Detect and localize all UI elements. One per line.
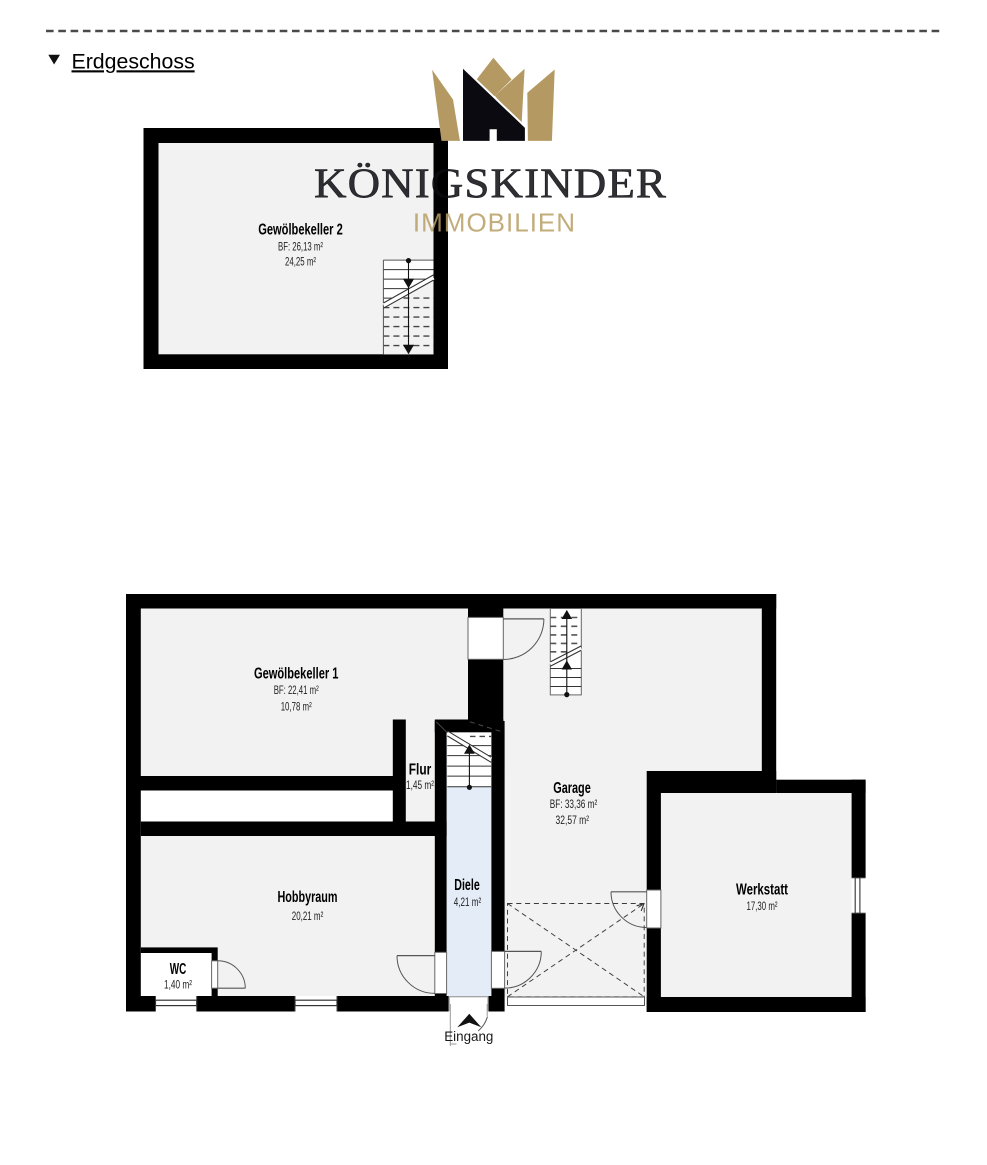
svg-text:Erdgeschoss: Erdgeschoss (72, 49, 195, 73)
svg-text:IMMOBILIEN: IMMOBILIEN (413, 207, 576, 237)
svg-text:20,21 m²: 20,21 m² (292, 909, 324, 923)
svg-text:32,57 m²: 32,57 m² (556, 813, 590, 827)
svg-text:1,40 m²: 1,40 m² (164, 978, 192, 992)
svg-text:1,45 m²: 1,45 m² (406, 778, 434, 792)
svg-text:4,21 m²: 4,21 m² (454, 895, 482, 909)
svg-text:24,25 m²: 24,25 m² (285, 255, 316, 269)
svg-text:KÖNIGSKINDER: KÖNIGSKINDER (314, 161, 667, 208)
svg-text:Hobbyraum: Hobbyraum (278, 889, 338, 906)
svg-text:WC: WC (170, 961, 187, 978)
svg-text:BF: 22,41 m²: BF: 22,41 m² (274, 683, 319, 697)
svg-text:Flur: Flur (409, 761, 432, 778)
svg-text:BF: 33,36 m²: BF: 33,36 m² (550, 797, 598, 811)
svg-text:Werkstatt: Werkstatt (736, 881, 788, 898)
svg-text:17,30 m²: 17,30 m² (747, 899, 778, 913)
svg-text:Eingang: Eingang (444, 1029, 493, 1044)
svg-text:Gewölbekeller 2: Gewölbekeller 2 (258, 221, 343, 238)
svg-text:10,78 m²: 10,78 m² (281, 700, 312, 714)
svg-text:Diele: Diele (454, 877, 480, 894)
svg-text:Gewölbekeller 1: Gewölbekeller 1 (254, 665, 339, 682)
svg-text:Garage: Garage (553, 780, 591, 797)
svg-text:BF: 26,13 m²: BF: 26,13 m² (278, 239, 323, 253)
